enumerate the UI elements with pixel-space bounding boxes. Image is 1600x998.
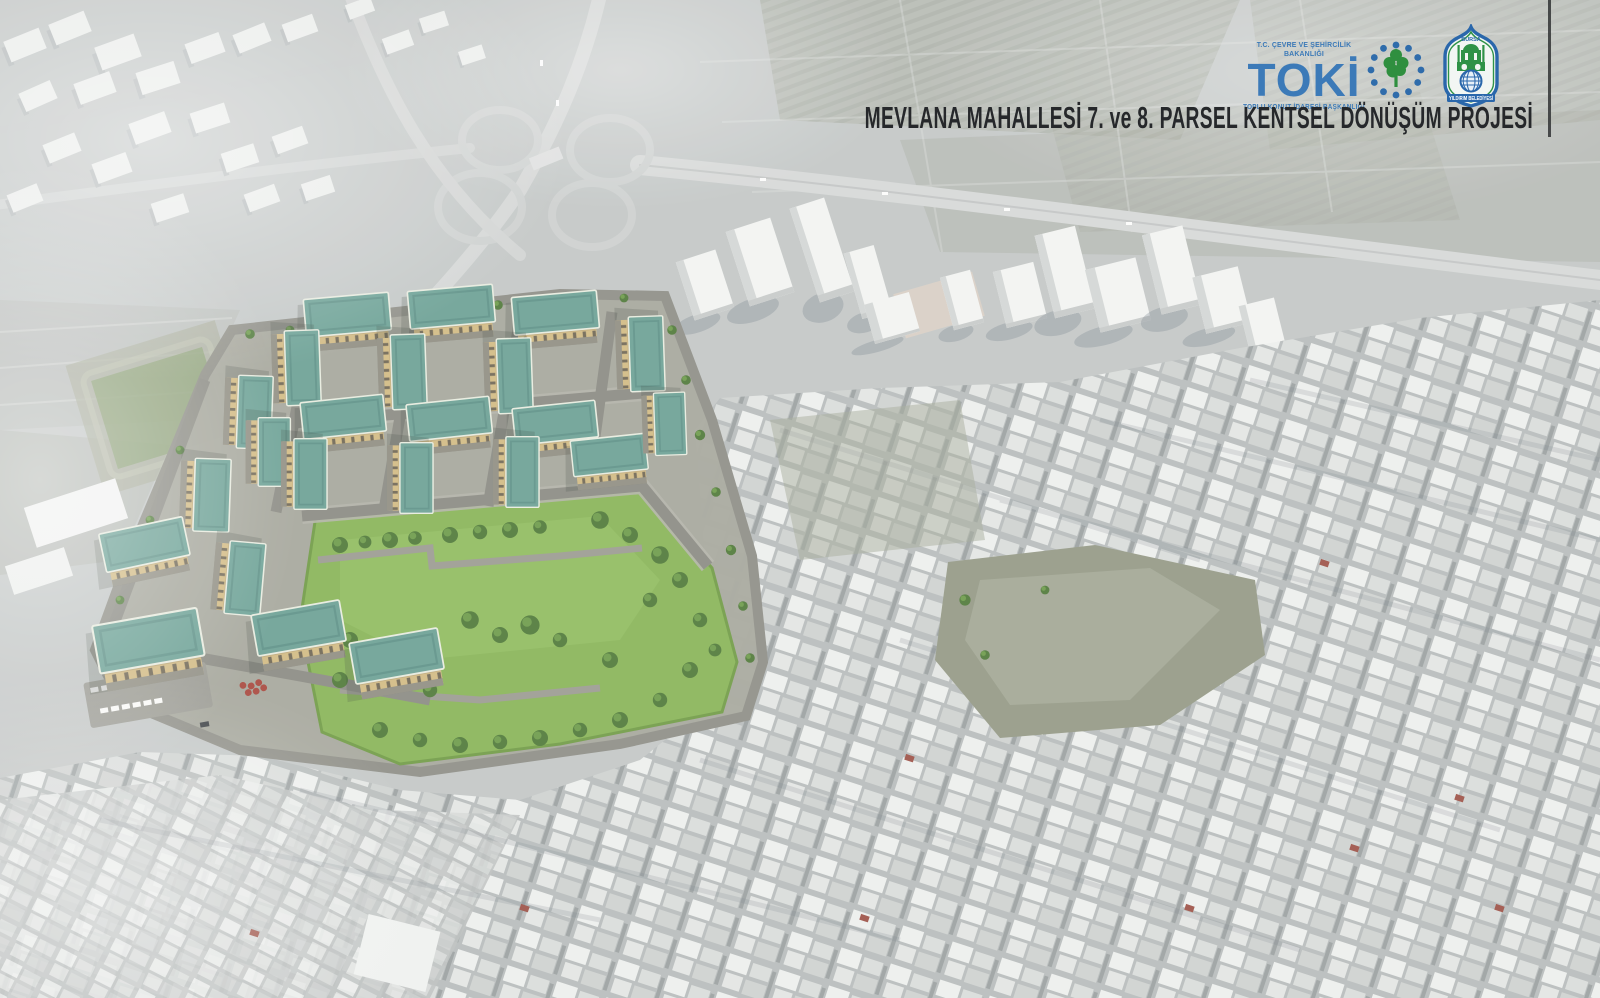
aerial-photo-scene (0, 0, 1600, 998)
aerial-project-poster: T.C. ÇEVRE VE ŞEHİRCİLİK BAKANLIĞI TOKİ … (0, 0, 1600, 998)
haze-overlay (0, 0, 1600, 998)
